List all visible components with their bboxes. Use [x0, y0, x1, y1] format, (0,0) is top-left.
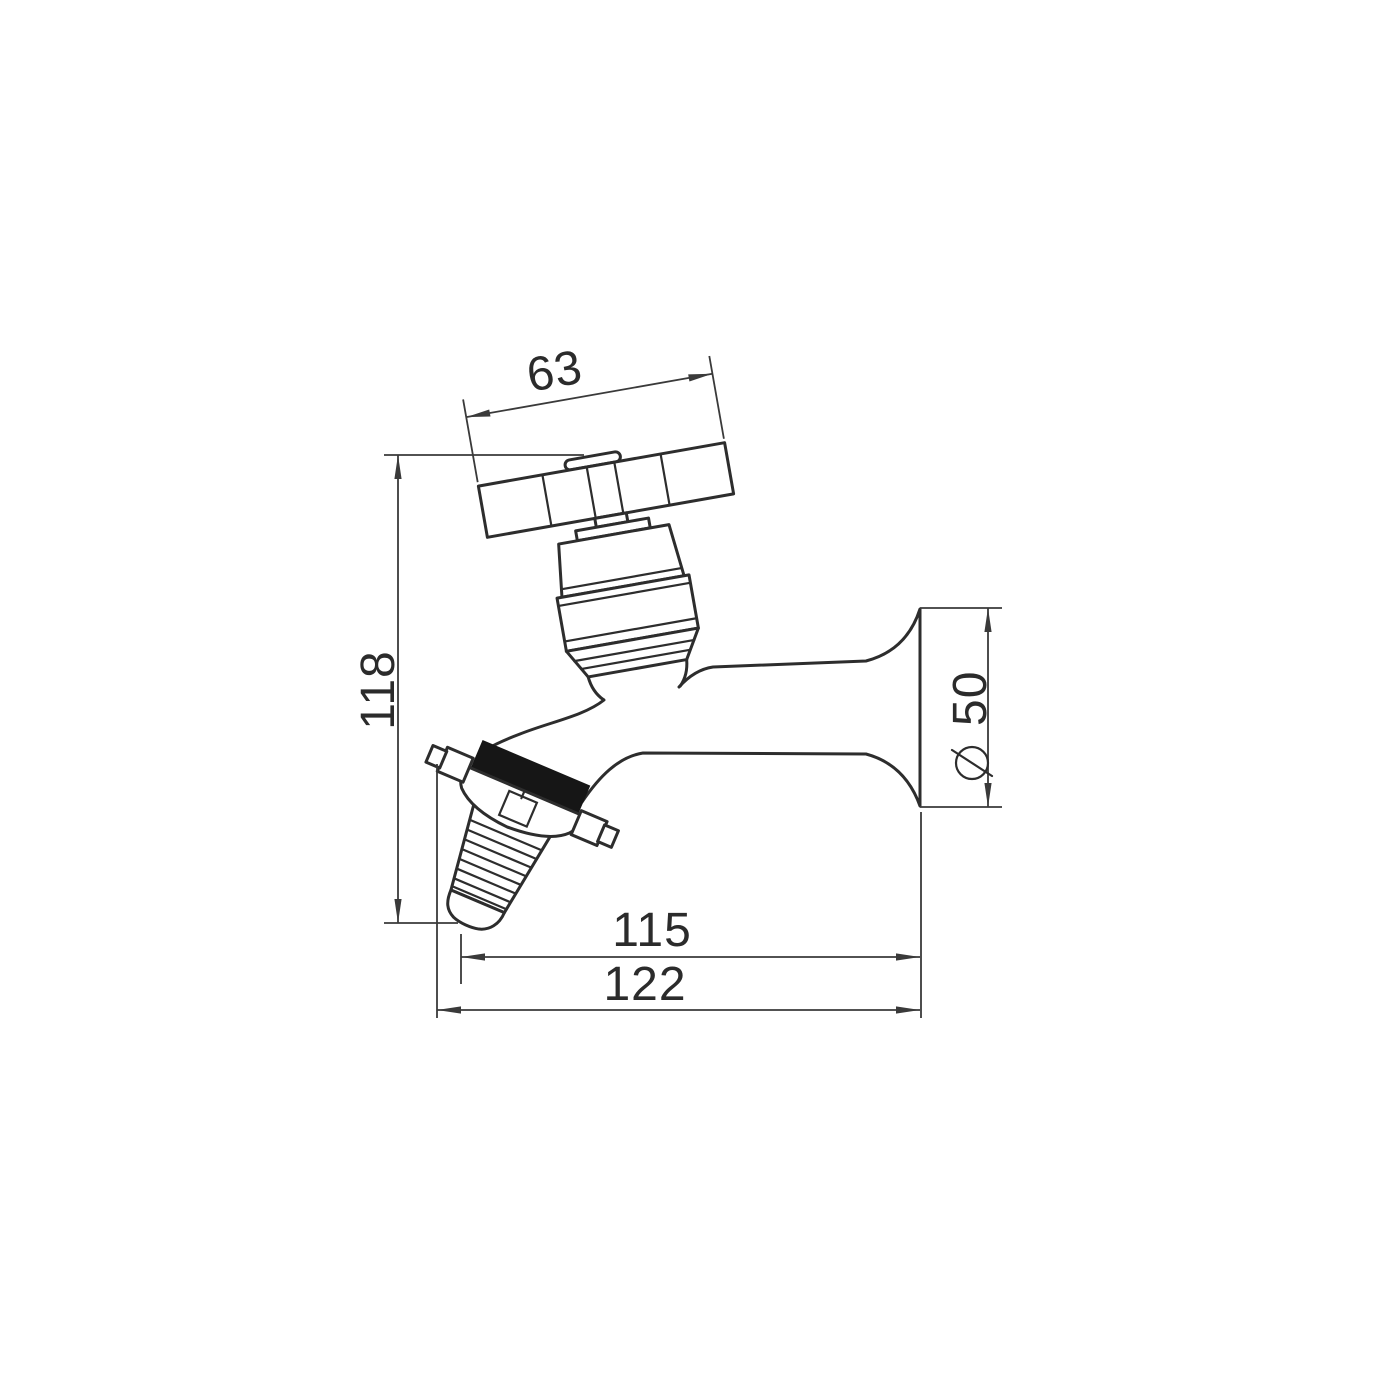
- extension-line: [709, 356, 724, 439]
- outlet-nozzle: [373, 723, 630, 965]
- dimension-label-63: 63: [523, 341, 587, 403]
- dim-flange-diameter: 50: [920, 608, 1002, 807]
- dimension-line: [466, 374, 712, 417]
- dimension-label-118: 118: [352, 650, 405, 730]
- valve-head: 63: [457, 319, 765, 715]
- dimension-label-50: 50: [944, 671, 997, 726]
- dimension-label-122: 122: [603, 958, 686, 1011]
- spout-left-edge: [485, 700, 604, 750]
- extension-line: [463, 399, 478, 482]
- bibcock-technical-drawing: 63 118 50: [0, 0, 1400, 1400]
- diameter-label: 50: [944, 671, 997, 779]
- bonnet-throat-left: [588, 675, 603, 702]
- bonnet-throat-right: [676, 660, 691, 687]
- dimension-label-115: 115: [612, 904, 692, 957]
